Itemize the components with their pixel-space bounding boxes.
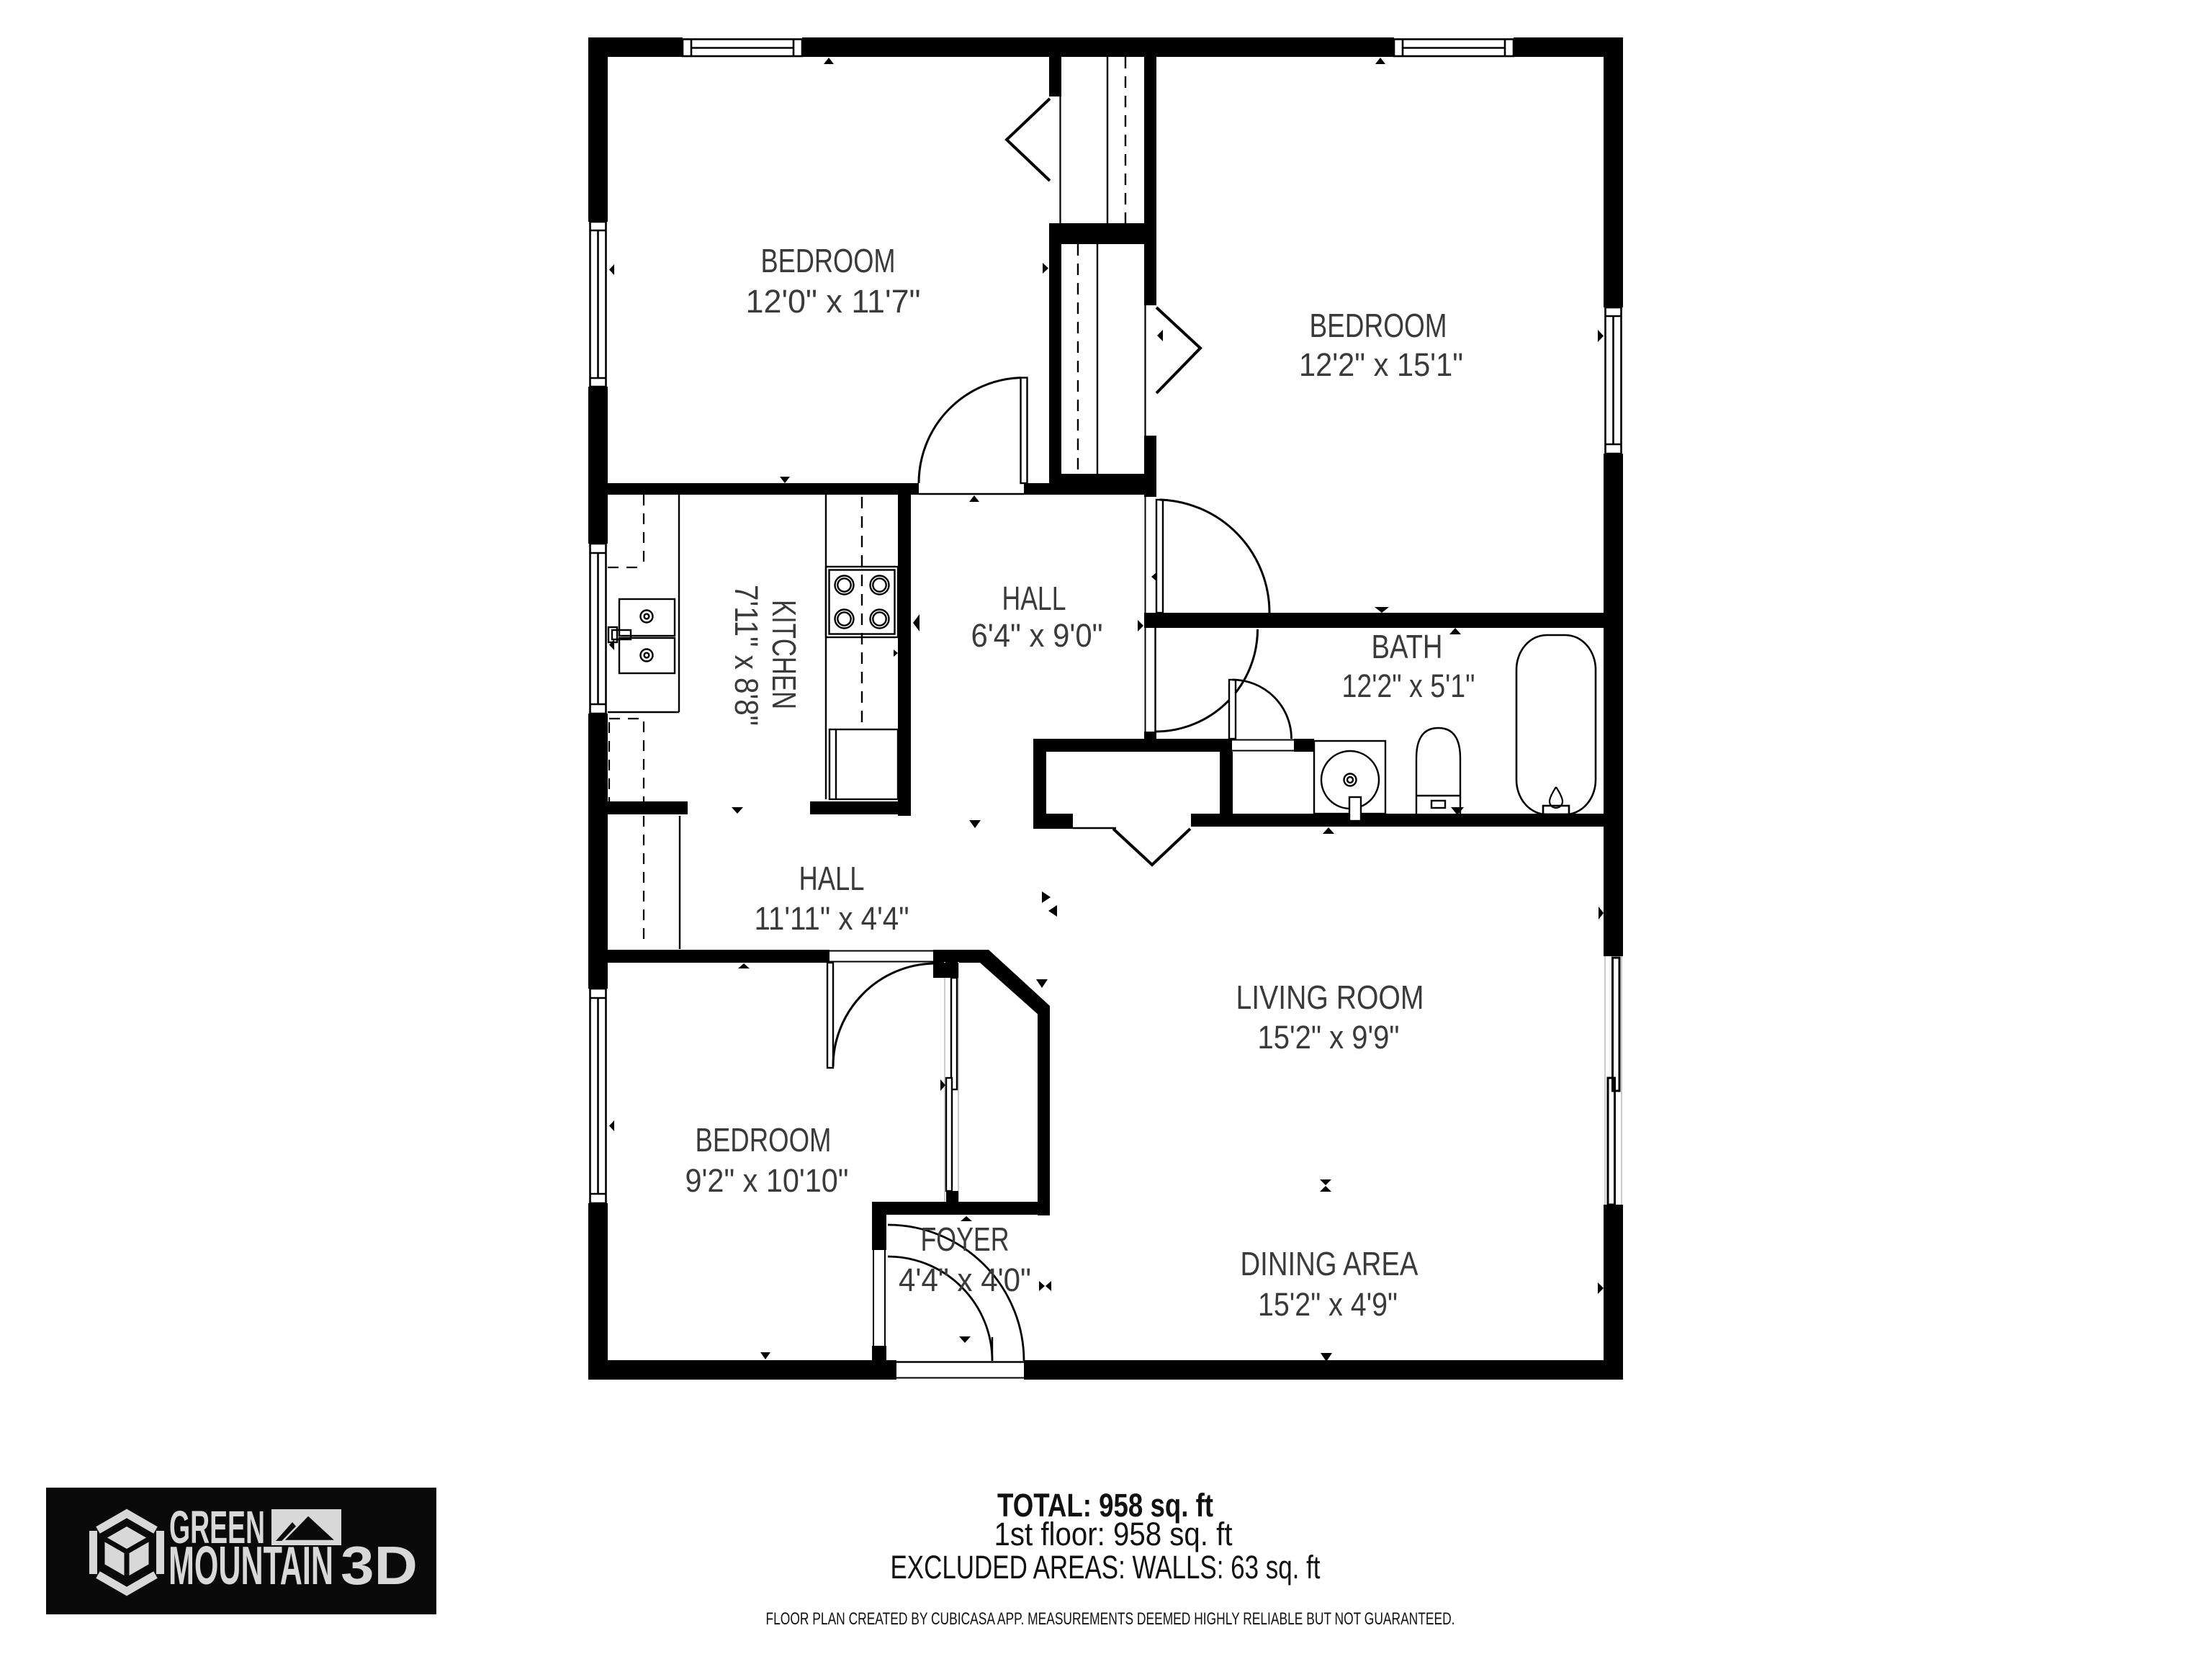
- svg-text:6'4" x 9'0": 6'4" x 9'0": [971, 617, 1103, 654]
- svg-text:BEDROOM: BEDROOM: [761, 242, 896, 279]
- svg-text:FOYER: FOYER: [921, 1220, 1010, 1258]
- svg-text:12'2" x 15'1": 12'2" x 15'1": [1299, 346, 1463, 383]
- svg-text:4'4" x 4'0": 4'4" x 4'0": [899, 1262, 1031, 1298]
- svg-text:12'0" x 11'7": 12'0" x 11'7": [746, 283, 921, 320]
- svg-text:BATH: BATH: [1372, 628, 1443, 665]
- svg-text:LIVING ROOM: LIVING ROOM: [1236, 979, 1424, 1016]
- svg-text:KITCHEN: KITCHEN: [765, 600, 803, 709]
- svg-text:15'2" x 9'9": 15'2" x 9'9": [1258, 1019, 1400, 1056]
- svg-text:15'2" x 4'9": 15'2" x 4'9": [1258, 1286, 1398, 1323]
- svg-text:1st floor: 958 sq. ft: 1st floor: 958 sq. ft: [994, 1516, 1233, 1552]
- svg-text:3D: 3D: [341, 1535, 418, 1596]
- svg-text:MOUNTAIN: MOUNTAIN: [168, 1535, 333, 1596]
- svg-text:BEDROOM: BEDROOM: [1310, 307, 1447, 344]
- svg-text:FLOOR PLAN CREATED BY CUBICASA: FLOOR PLAN CREATED BY CUBICASA APP. MEAS…: [766, 1609, 1455, 1629]
- svg-text:11'11" x 4'4": 11'11" x 4'4": [755, 900, 909, 937]
- svg-text:BEDROOM: BEDROOM: [696, 1121, 832, 1159]
- svg-text:9'2" x 10'10": 9'2" x 10'10": [685, 1162, 849, 1199]
- svg-text:EXCLUDED AREAS: WALLS: 63 sq.: EXCLUDED AREAS: WALLS: 63 sq. ft: [891, 1549, 1321, 1586]
- svg-text:DINING AREA: DINING AREA: [1241, 1245, 1419, 1282]
- svg-text:HALL: HALL: [799, 860, 865, 897]
- svg-text:HALL: HALL: [1002, 580, 1066, 617]
- svg-text:12'2" x 5'1": 12'2" x 5'1": [1342, 667, 1475, 704]
- svg-text:7'11" x 8'8": 7'11" x 8'8": [728, 585, 765, 726]
